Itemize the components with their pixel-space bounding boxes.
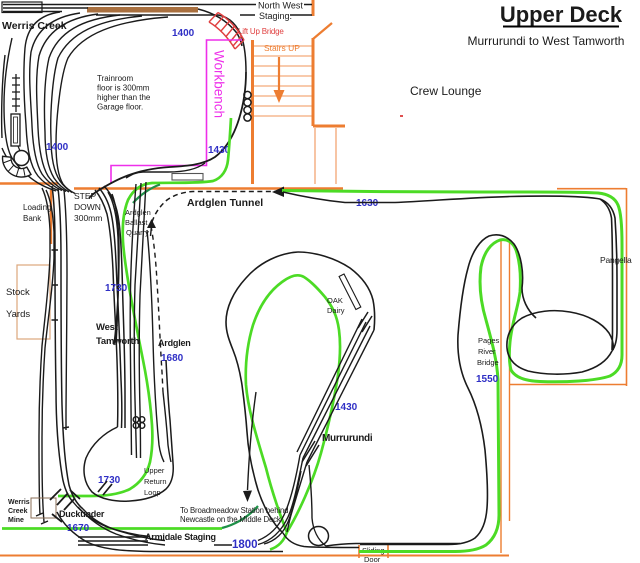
svg-text:Door: Door	[364, 555, 381, 563]
svg-text:Murrurundi: Murrurundi	[322, 433, 373, 444]
svg-text:Bank: Bank	[23, 214, 42, 223]
svg-text:floor is 300mm: floor is 300mm	[97, 84, 150, 93]
svg-text:Werris Creek: Werris Creek	[2, 20, 67, 32]
svg-text:STEP: STEP	[74, 191, 97, 201]
svg-text:1730: 1730	[105, 283, 128, 294]
svg-text:1730: 1730	[98, 475, 121, 486]
svg-text:Yards: Yards	[6, 309, 30, 320]
svg-text:Upper: Upper	[144, 466, 165, 475]
svg-text:Loop: Loop	[144, 488, 161, 497]
svg-text:Dairy: Dairy	[327, 306, 345, 315]
svg-text:Lift Up Bridge: Lift Up Bridge	[238, 27, 284, 36]
svg-text:Ardglen Tunnel: Ardglen Tunnel	[187, 197, 263, 209]
svg-text:To Broadmeadow Station behind: To Broadmeadow Station behind	[180, 506, 288, 515]
svg-text:Newcastle on the Middle Deck: Newcastle on the Middle Deck	[180, 515, 281, 524]
svg-text:Mine: Mine	[8, 517, 24, 524]
svg-text:North West: North West	[258, 1, 303, 11]
svg-text:River: River	[478, 347, 496, 356]
svg-text:1670: 1670	[67, 523, 90, 534]
svg-text:1550: 1550	[476, 374, 499, 385]
svg-text:Bridge: Bridge	[477, 358, 499, 367]
svg-text:Ardglen: Ardglen	[125, 208, 151, 217]
svg-text:Crew Lounge: Crew Lounge	[410, 84, 482, 98]
svg-text:1800: 1800	[232, 539, 258, 551]
svg-text:Stock: Stock	[6, 287, 30, 298]
svg-text:Upper Deck: Upper Deck	[500, 2, 623, 27]
svg-text:West: West	[96, 322, 119, 333]
svg-text:1400: 1400	[172, 28, 195, 39]
svg-text:Garage floor.: Garage floor.	[97, 103, 143, 112]
svg-text:1680: 1680	[161, 353, 184, 364]
svg-text:Return: Return	[144, 477, 167, 486]
svg-text:Pangella: Pangella	[600, 255, 632, 265]
svg-text:1430: 1430	[335, 402, 358, 413]
svg-text:1400: 1400	[46, 142, 69, 153]
svg-text:higher than the: higher than the	[97, 93, 151, 102]
svg-text:Ballast: Ballast	[125, 218, 148, 227]
svg-text:OAK: OAK	[327, 296, 343, 305]
svg-text:DOWN: DOWN	[74, 202, 101, 212]
svg-text:Tamworth: Tamworth	[96, 336, 139, 347]
svg-text:Workbench: Workbench	[212, 50, 227, 118]
svg-text:Trainroom: Trainroom	[97, 74, 133, 83]
svg-text:Murrurundi to West Tamworth: Murrurundi to West Tamworth	[468, 34, 625, 48]
svg-text:Armidale Staging: Armidale Staging	[145, 532, 216, 542]
svg-text:Creek: Creek	[8, 508, 28, 515]
svg-text:300mm: 300mm	[74, 213, 102, 223]
svg-text:1630: 1630	[356, 198, 379, 209]
svg-text:Pages: Pages	[478, 336, 500, 345]
svg-text:Werris: Werris	[8, 499, 30, 506]
svg-text:Ardglen: Ardglen	[158, 338, 191, 348]
svg-text:Stairs UP: Stairs UP	[264, 43, 300, 53]
svg-text:Staging.: Staging.	[259, 11, 292, 21]
